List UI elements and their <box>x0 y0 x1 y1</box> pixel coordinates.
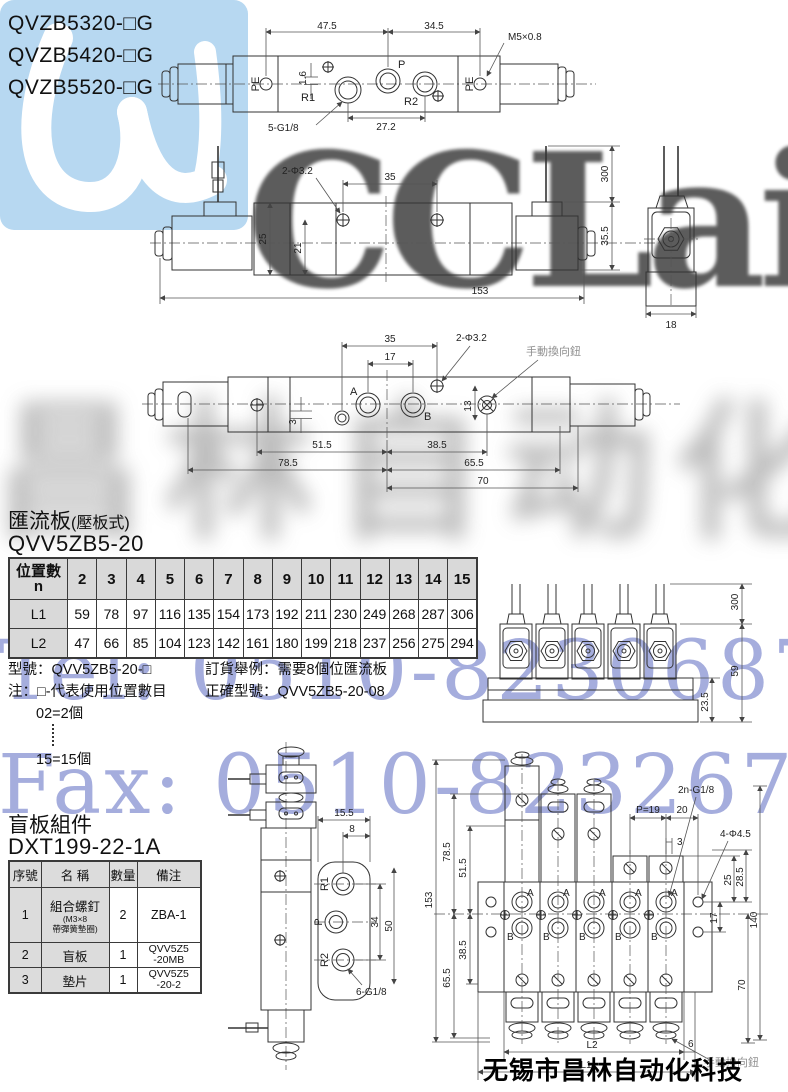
note-line1: 注：□-代表使用位置數目 <box>8 680 167 701</box>
model-list: QVZB5320-□G QVZB5420-□G QVZB5520-□G <box>8 8 153 104</box>
port-r1-label: R1 <box>301 92 315 104</box>
dimension-value-cell: 192 <box>272 600 301 629</box>
note-line3: 15=15個 <box>36 748 91 769</box>
position-count-cell: 6 <box>185 558 214 600</box>
valve-side-view-drawing: 2-Φ3.2 35 25 21 153 300 35.5 18 <box>150 138 720 338</box>
dim-51-5: 51.5 <box>312 440 332 451</box>
valve-bottom-view-drawing: 35 17 2-Φ3.2 手動換向鈕 A B 3 13 51.5 38.5 78… <box>140 322 760 514</box>
single-valve-dimensions: 15.5 8 R1 P R2 34 50 6-G1/8 <box>313 808 395 998</box>
dim-l2: L2 <box>586 1040 598 1051</box>
dim-34: 34 <box>370 916 381 928</box>
parts-header-no: 序號 <box>9 861 41 888</box>
parts-cell-note: ZBA-1 <box>137 888 201 943</box>
dimension-value-cell: 123 <box>185 629 214 659</box>
dimension-value-cell: 230 <box>331 600 360 629</box>
dim-300: 300 <box>730 593 741 610</box>
parts-cell-no: 1 <box>9 888 41 943</box>
dim-65-5: 65.5 <box>464 458 484 469</box>
dim-34-5: 34.5 <box>424 21 444 32</box>
position-count-cell: 12 <box>360 558 389 600</box>
dim-65-5: 65.5 <box>442 968 453 988</box>
port-pe-left-label: PE <box>250 77 262 92</box>
position-count-cell: 15 <box>448 558 477 600</box>
dim-35-5: 35.5 <box>600 226 611 246</box>
dim-38-5: 38.5 <box>427 440 447 451</box>
dimension-value-cell: 116 <box>155 600 184 629</box>
position-count-cell: 14 <box>419 558 448 600</box>
valve-top-dimensions: 47.5 34.5 M5×0.8 1.6 27.2 5-G1/8 PE PE R… <box>250 21 542 134</box>
port-p-label: P <box>313 918 325 925</box>
dim-300: 300 <box>600 165 611 182</box>
position-count-cell: 7 <box>214 558 243 600</box>
dim-78-5: 78.5 <box>442 842 453 862</box>
parts-cell-name: 墊片 <box>41 968 109 994</box>
dim-13: 13 <box>463 400 474 412</box>
dim-3: 3 <box>288 419 299 425</box>
dimension-value-cell: 154 <box>214 600 243 629</box>
dim-holes-2d32: 2-Φ3.2 <box>282 166 313 177</box>
position-count-cell: 9 <box>272 558 301 600</box>
parts-cell-no: 3 <box>9 968 41 994</box>
position-count-cell: 3 <box>97 558 126 600</box>
dim-50: 50 <box>384 920 395 932</box>
dimension-value-cell: 199 <box>302 629 331 659</box>
dimension-row: L247668510412314216118019921823725627529… <box>9 629 477 659</box>
port-p-label: P <box>398 59 405 71</box>
manifold-model-number: QVV5ZB5-20 <box>8 531 144 557</box>
parts-cell-note: QVV5Z5 -20-2 <box>137 968 201 994</box>
dim-1-6: 1.6 <box>298 71 309 85</box>
parts-row-2: 2 盲板 1 QVV5Z5 -20MB <box>9 943 201 968</box>
positions-table: 位置數n23456789101112131415L159789711613515… <box>8 557 478 659</box>
port-r1-label: R1 <box>319 877 331 891</box>
dim-8: 8 <box>349 824 355 835</box>
dim-38-5: 38.5 <box>458 940 469 960</box>
dimension-row: L159789711613515417319221123024926828730… <box>9 600 477 629</box>
note-model: 型號：QVV5ZB5-20-□ <box>8 658 151 679</box>
dimension-value-cell: 142 <box>214 629 243 659</box>
dim-153: 153 <box>472 286 489 297</box>
dimension-value-cell: 218 <box>331 629 360 659</box>
ellipsis-dots <box>52 724 54 746</box>
manifold-front-dimensions: 153 78.5 51.5 38.5 65.5 P=19 20 3 2n-G1/… <box>424 760 767 1080</box>
parts-row-1: 1 組合螺釘 (M3×8 帶彈簧墊圈) 2 ZBA-1 <box>9 888 201 943</box>
dim-59: 59 <box>730 665 741 677</box>
port-a-label: A <box>599 888 606 899</box>
part-note-line2: -20MB <box>138 955 201 967</box>
dim-17: 17 <box>709 912 720 924</box>
port-b-label: B <box>579 932 586 943</box>
port-b-label: B <box>424 411 431 423</box>
dim-153: 153 <box>424 891 435 908</box>
dim-70: 70 <box>737 979 748 991</box>
dimension-value-cell: 287 <box>419 600 448 629</box>
parts-cell-qty: 2 <box>109 888 137 943</box>
port-r2-label: R2 <box>404 96 418 108</box>
parts-cell-qty: 1 <box>109 968 137 994</box>
position-count-cell: 11 <box>331 558 360 600</box>
dim-ports-5g18: 5-G1/8 <box>268 123 299 134</box>
parts-cell-name: 盲板 <box>41 943 109 968</box>
model-number-2: QVZB5420-□G <box>8 40 153 72</box>
dim-15-5: 15.5 <box>334 808 354 819</box>
model-number-1: QVZB5320-□G <box>8 8 153 40</box>
manifold-heading-note: (壓板式) <box>71 515 130 532</box>
port-b-label: B <box>507 932 514 943</box>
dimension-value-cell: 180 <box>272 629 301 659</box>
datasheet-page: CCLair 昌林自动化 Tel: 0510-82306871 Fax: 051… <box>0 0 788 1092</box>
dimension-value-cell: 249 <box>360 600 389 629</box>
port-b-label: B <box>615 932 622 943</box>
dimension-value-cell: 294 <box>448 629 477 659</box>
manual-override-label: 手動換向鈕 <box>526 344 581 358</box>
port-r2-label: R2 <box>319 953 331 967</box>
parts-cell-qty: 1 <box>109 943 137 968</box>
dim-78-5: 78.5 <box>278 458 298 469</box>
manifold-coils <box>483 584 698 722</box>
dim-140: 140 <box>749 911 760 928</box>
dim-35: 35 <box>384 334 396 345</box>
dimension-value-cell: 237 <box>360 629 389 659</box>
valve-bottom-outline <box>142 370 680 440</box>
manifold-front-outline <box>434 752 768 992</box>
manifold-side-view-drawing: 300 59 23.5 <box>480 556 780 761</box>
port-b-label: B <box>651 932 658 943</box>
parts-cell-note: QVV5Z5 -20MB <box>137 943 201 968</box>
dim-ports-6g18: 6-G1/8 <box>356 987 387 998</box>
dim-23-5: 23.5 <box>700 692 711 712</box>
note-line2: 02=2個 <box>36 702 83 723</box>
dimension-value-cell: 104 <box>155 629 184 659</box>
dim-25: 25 <box>723 874 734 886</box>
manifold-side-dimensions: 300 59 23.5 <box>670 584 752 722</box>
position-count-cell: 2 <box>68 558 97 600</box>
parts-header-qty: 數量 <box>109 861 137 888</box>
parts-cell-no: 2 <box>9 943 41 968</box>
positions-corner-cell: 位置數n <box>9 558 68 600</box>
port-a-label: A <box>671 888 678 899</box>
valve-top-outline <box>158 56 596 112</box>
valve-bottom-dimensions: 35 17 2-Φ3.2 手動換向鈕 A B 3 13 51.5 38.5 78… <box>188 333 581 492</box>
dimension-value-cell: 161 <box>243 629 272 659</box>
single-valve-outline <box>228 742 376 1070</box>
row-label-cell: L2 <box>9 629 68 659</box>
order-model-line: 正確型號：QVV5ZB5-20-08 <box>205 680 385 701</box>
manifold-front-drawing: A B A B A B A B A B <box>420 750 788 1092</box>
dim-70: 70 <box>477 476 489 487</box>
parts-header-name: 名 稱 <box>41 861 109 888</box>
dim-25: 25 <box>258 233 269 245</box>
port-a-label: A <box>563 888 570 899</box>
dim-35: 35 <box>384 172 396 183</box>
dimension-value-cell: 85 <box>126 629 155 659</box>
dim-holes-4d45: 4-Φ4.5 <box>720 829 751 840</box>
part-name: 組合螺釘 <box>42 896 109 915</box>
positions-header-row: 位置數n23456789101112131415 <box>9 558 477 600</box>
dim-47-5: 47.5 <box>317 21 337 32</box>
dim-20: 20 <box>676 805 688 816</box>
dim-51-5: 51.5 <box>458 858 469 878</box>
valve-side-dimensions: 2-Φ3.2 35 25 21 153 300 35.5 18 <box>160 146 696 331</box>
part-name-sub2: 帶彈簧墊圈) <box>42 925 109 935</box>
row-label-cell: L1 <box>9 600 68 629</box>
dim-17: 17 <box>384 352 396 363</box>
dimension-value-cell: 275 <box>419 629 448 659</box>
dim-6: 6 <box>688 1039 694 1050</box>
dim-3: 3 <box>677 837 683 848</box>
dimension-value-cell: 135 <box>185 600 214 629</box>
port-a-label: A <box>635 888 642 899</box>
dimension-value-cell: 47 <box>68 629 97 659</box>
position-count-cell: 4 <box>126 558 155 600</box>
parts-cell-name: 組合螺釘 (M3×8 帶彈簧墊圈) <box>41 888 109 943</box>
dimension-value-cell: 306 <box>448 600 477 629</box>
blank-plate-model: DXT199-22-1A <box>8 834 161 860</box>
manifold-heading-text: 匯流板 <box>8 510 71 533</box>
dimension-value-cell: 268 <box>389 600 418 629</box>
parts-header-note: 備注 <box>137 861 201 888</box>
port-a-label: A <box>350 386 358 398</box>
order-example-line: 訂貨舉例：需要8個位匯流板 <box>205 658 387 679</box>
position-count-cell: 5 <box>155 558 184 600</box>
dimension-value-cell: 173 <box>243 600 272 629</box>
dim-pitch: P=19 <box>636 805 660 816</box>
footer-company-watermark: 无锡市昌林自动化科技 <box>483 1051 743 1087</box>
valve-top-view-drawing: 47.5 34.5 M5×0.8 1.6 27.2 5-G1/8 PE PE R… <box>158 18 598 142</box>
dim-21: 21 <box>293 242 304 254</box>
valve-side-outline <box>150 146 670 282</box>
dimension-value-cell: 66 <box>97 629 126 659</box>
dimension-value-cell: 97 <box>126 600 155 629</box>
dimension-value-cell: 211 <box>302 600 331 629</box>
parts-table: 序號 名 稱 數量 備注 1 組合螺釘 (M3×8 帶彈簧墊圈) 2 ZBA-1… <box>8 860 202 994</box>
port-b-label: B <box>543 932 550 943</box>
position-count-cell: 8 <box>243 558 272 600</box>
part-note-line2: -20-2 <box>138 980 201 992</box>
parts-header-row: 序號 名 稱 數量 備注 <box>9 861 201 888</box>
dimension-value-cell: 59 <box>68 600 97 629</box>
dim-28-5: 28.5 <box>735 867 746 887</box>
dim-holes-2d32: 2-Φ3.2 <box>456 333 487 344</box>
port-a-label: A <box>527 888 534 899</box>
dimension-value-cell: 256 <box>389 629 418 659</box>
dim-27-2: 27.2 <box>376 122 396 133</box>
position-count-cell: 13 <box>389 558 418 600</box>
dim-thread: M5×0.8 <box>508 32 542 43</box>
port-pe-right-label: PE <box>464 77 476 92</box>
position-count-cell: 10 <box>302 558 331 600</box>
parts-row-3: 3 墊片 1 QVV5Z5 -20-2 <box>9 968 201 994</box>
model-number-3: QVZB5520-□G <box>8 72 153 104</box>
dimension-value-cell: 78 <box>97 600 126 629</box>
valve-end-view <box>644 146 698 308</box>
dim-ports-2ng18: 2n-G1/8 <box>678 785 715 796</box>
